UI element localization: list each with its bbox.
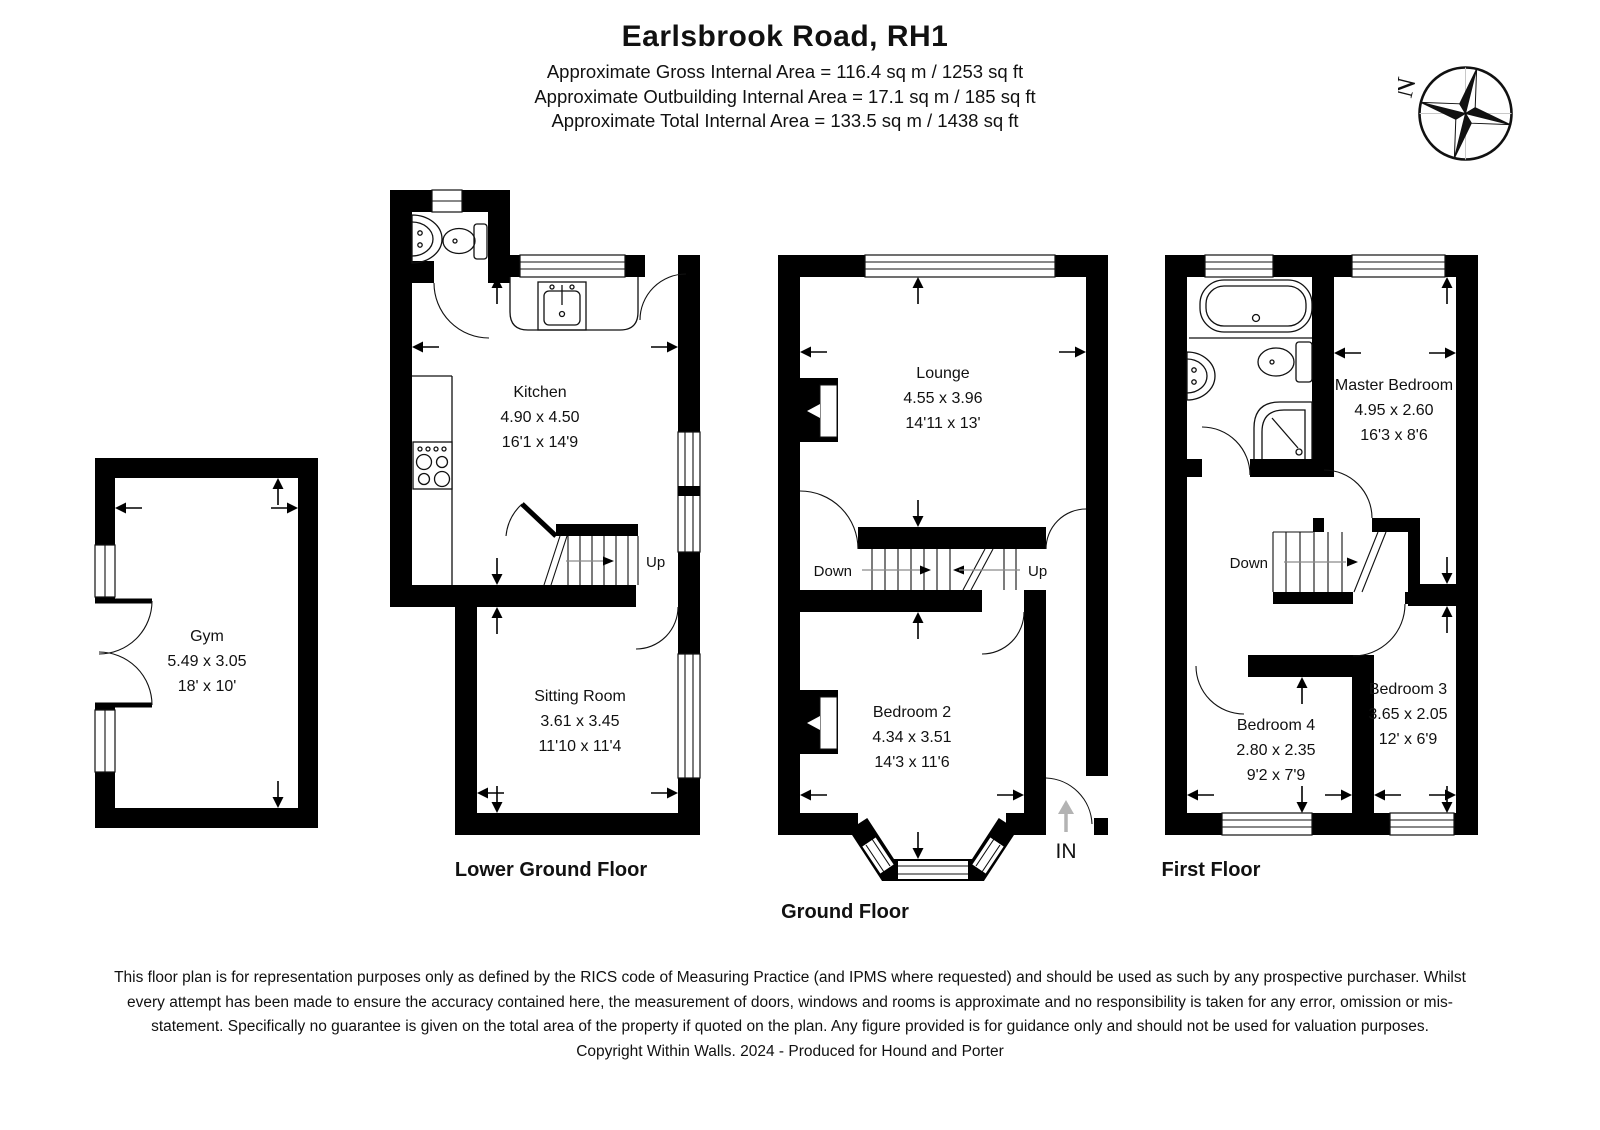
dim-arrow-icon [273, 781, 284, 808]
bathtub [1189, 280, 1312, 338]
dim-arrow-icon [492, 786, 503, 813]
dim-arrow-icon [1059, 347, 1086, 358]
lounge-dim-imperial: 14'11 x 13' [905, 415, 980, 432]
dim-arrow-icon [412, 342, 439, 353]
bedroom4-dim-imperial: 9'2 x 7'9 [1247, 767, 1306, 784]
first-floor-label: First Floor [1162, 859, 1261, 881]
kitchen-dim-imperial: 16'1 x 14'9 [502, 434, 578, 451]
kitchen-worktop [510, 277, 638, 330]
bedroom2-dim-imperial: 14'3 x 11'6 [874, 754, 949, 771]
master-bedroom-dim-imperial: 16'3 x 8'6 [1360, 427, 1428, 444]
dim-arrow-icon [1297, 677, 1308, 704]
dim-arrow-icon [913, 612, 924, 639]
dim-arrow-icon [651, 788, 678, 799]
lounge-window [865, 255, 1055, 277]
dim-arrow-icon [1442, 557, 1453, 584]
sitting-room-dim-imperial: 11'10 x 11'4 [539, 738, 622, 755]
dim-arrow-icon [273, 478, 284, 505]
lounge-door-right-arc [1046, 509, 1086, 549]
dim-arrow-icon [997, 790, 1024, 801]
lounge-fireplace [800, 378, 838, 442]
gym-floorplan: Gym 5.49 x 3.05 18' x 10' [94, 458, 318, 828]
dim-arrow-icon [1374, 790, 1401, 801]
lounge-label: Lounge [916, 365, 969, 382]
footer: This floor plan is for representation pu… [105, 966, 1475, 1064]
bay-window [858, 824, 1008, 874]
master-bedroom-dim-metric: 4.95 x 2.60 [1354, 402, 1433, 419]
dim-arrow-icon [115, 503, 142, 514]
lower-ground-floorplan: Up Kitchen 4.90 x 4.50 16'1 x 14'9 Sitti… [390, 190, 700, 881]
dim-arrow-icon [492, 558, 503, 585]
disclaimer-text: This floor plan is for representation pu… [105, 966, 1475, 1040]
dim-arrow-icon [800, 790, 827, 801]
bedroom3-label: Bedroom 3 [1369, 681, 1447, 698]
bedroom3-dim-imperial: 12' x 6'9 [1379, 731, 1438, 748]
kitchen-label: Kitchen [513, 384, 566, 401]
gf-up-label: Up [1028, 563, 1047, 580]
sitting-room-dim-metric: 3.61 x 3.45 [540, 713, 619, 730]
bedroom3-door-arc [1353, 604, 1405, 656]
bathroom-door-arc [1202, 427, 1250, 475]
bedroom4-dim-metric: 2.80 x 2.35 [1236, 742, 1315, 759]
dim-arrow-icon [1442, 277, 1453, 304]
bedroom3-window [1390, 813, 1454, 835]
bedroom4-window [1222, 813, 1312, 835]
entrance-in-arrow-icon [1058, 800, 1074, 832]
wc-toilet [443, 224, 487, 259]
dim-arrow-icon [1429, 348, 1456, 359]
bedroom4-door-arc [1196, 666, 1244, 714]
master-bedroom-window [1352, 255, 1445, 277]
shower [1254, 402, 1312, 459]
sitting-room-label: Sitting Room [534, 688, 626, 705]
ground-floor-label: Ground Floor [781, 901, 909, 923]
kitchen-dim-metric: 4.90 x 4.50 [500, 409, 579, 426]
kitchen-window [520, 255, 625, 277]
master-bedroom-label: Master Bedroom [1335, 377, 1453, 394]
front-door-arc [1046, 778, 1092, 824]
ff-stairs [1273, 532, 1386, 592]
dim-arrow-icon [913, 500, 924, 527]
ff-down-label: Down [1230, 555, 1268, 572]
bedroom4-label: Bedroom 4 [1237, 717, 1315, 734]
floorplan-page: Earlsbrook Road, RH1 Approximate Gross I… [0, 0, 1600, 1130]
dim-arrow-icon [800, 347, 827, 358]
lgf-stairs [506, 504, 638, 585]
bathroom-toilet [1258, 342, 1312, 382]
copyright-text: Copyright Within Walls. 2024 - Produced … [105, 1040, 1475, 1064]
bedroom2-fireplace [800, 690, 838, 754]
lounge-door-left-arc [800, 491, 858, 549]
bedroom3-dim-metric: 3.65 x 2.05 [1368, 706, 1447, 723]
bedroom2-dim-metric: 4.34 x 3.51 [872, 729, 951, 746]
bedroom2-door-arc [982, 612, 1024, 654]
lgf-up-label: Up [646, 554, 665, 571]
dim-arrow-icon [271, 503, 298, 514]
floorplan-drawing: Gym 5.49 x 3.05 18' x 10' [0, 0, 1600, 1130]
bathroom-sink [1187, 352, 1215, 400]
dim-arrow-icon [1334, 348, 1361, 359]
stove [413, 442, 452, 489]
dim-arrow-icon [1297, 786, 1308, 813]
sitting-room-door-arc [636, 607, 678, 649]
gym-dim-imperial: 18' x 10' [178, 678, 237, 695]
gym-dim-metric: 5.49 x 3.05 [167, 653, 246, 670]
wc-door-arc [434, 283, 489, 338]
dim-arrow-icon [1429, 790, 1456, 801]
entrance-in-label: IN [1056, 840, 1077, 863]
dim-arrow-icon [477, 788, 504, 799]
ground-floorplan: Down Up IN [778, 255, 1108, 923]
gf-stairs [862, 549, 1020, 590]
gym-label: Gym [190, 628, 224, 645]
dim-arrow-icon [1442, 606, 1453, 633]
wc-sink [412, 215, 442, 263]
bedroom2-label: Bedroom 2 [873, 704, 951, 721]
master-bedroom-door-arc [1324, 470, 1372, 518]
dim-arrow-icon [913, 832, 924, 859]
dim-arrow-icon [1325, 790, 1352, 801]
dim-arrow-icon [651, 342, 678, 353]
gf-down-label: Down [814, 563, 852, 580]
first-floorplan: Down Master Bedroom 4.95 x 2.60 16'3 x 8… [1162, 255, 1478, 881]
lounge-dim-metric: 4.55 x 3.96 [903, 390, 982, 407]
dim-arrow-icon [913, 277, 924, 304]
lower-ground-floor-label: Lower Ground Floor [455, 859, 647, 881]
dim-arrow-icon [492, 607, 503, 634]
bathroom-window [1205, 255, 1273, 277]
dim-arrow-icon [1187, 790, 1214, 801]
